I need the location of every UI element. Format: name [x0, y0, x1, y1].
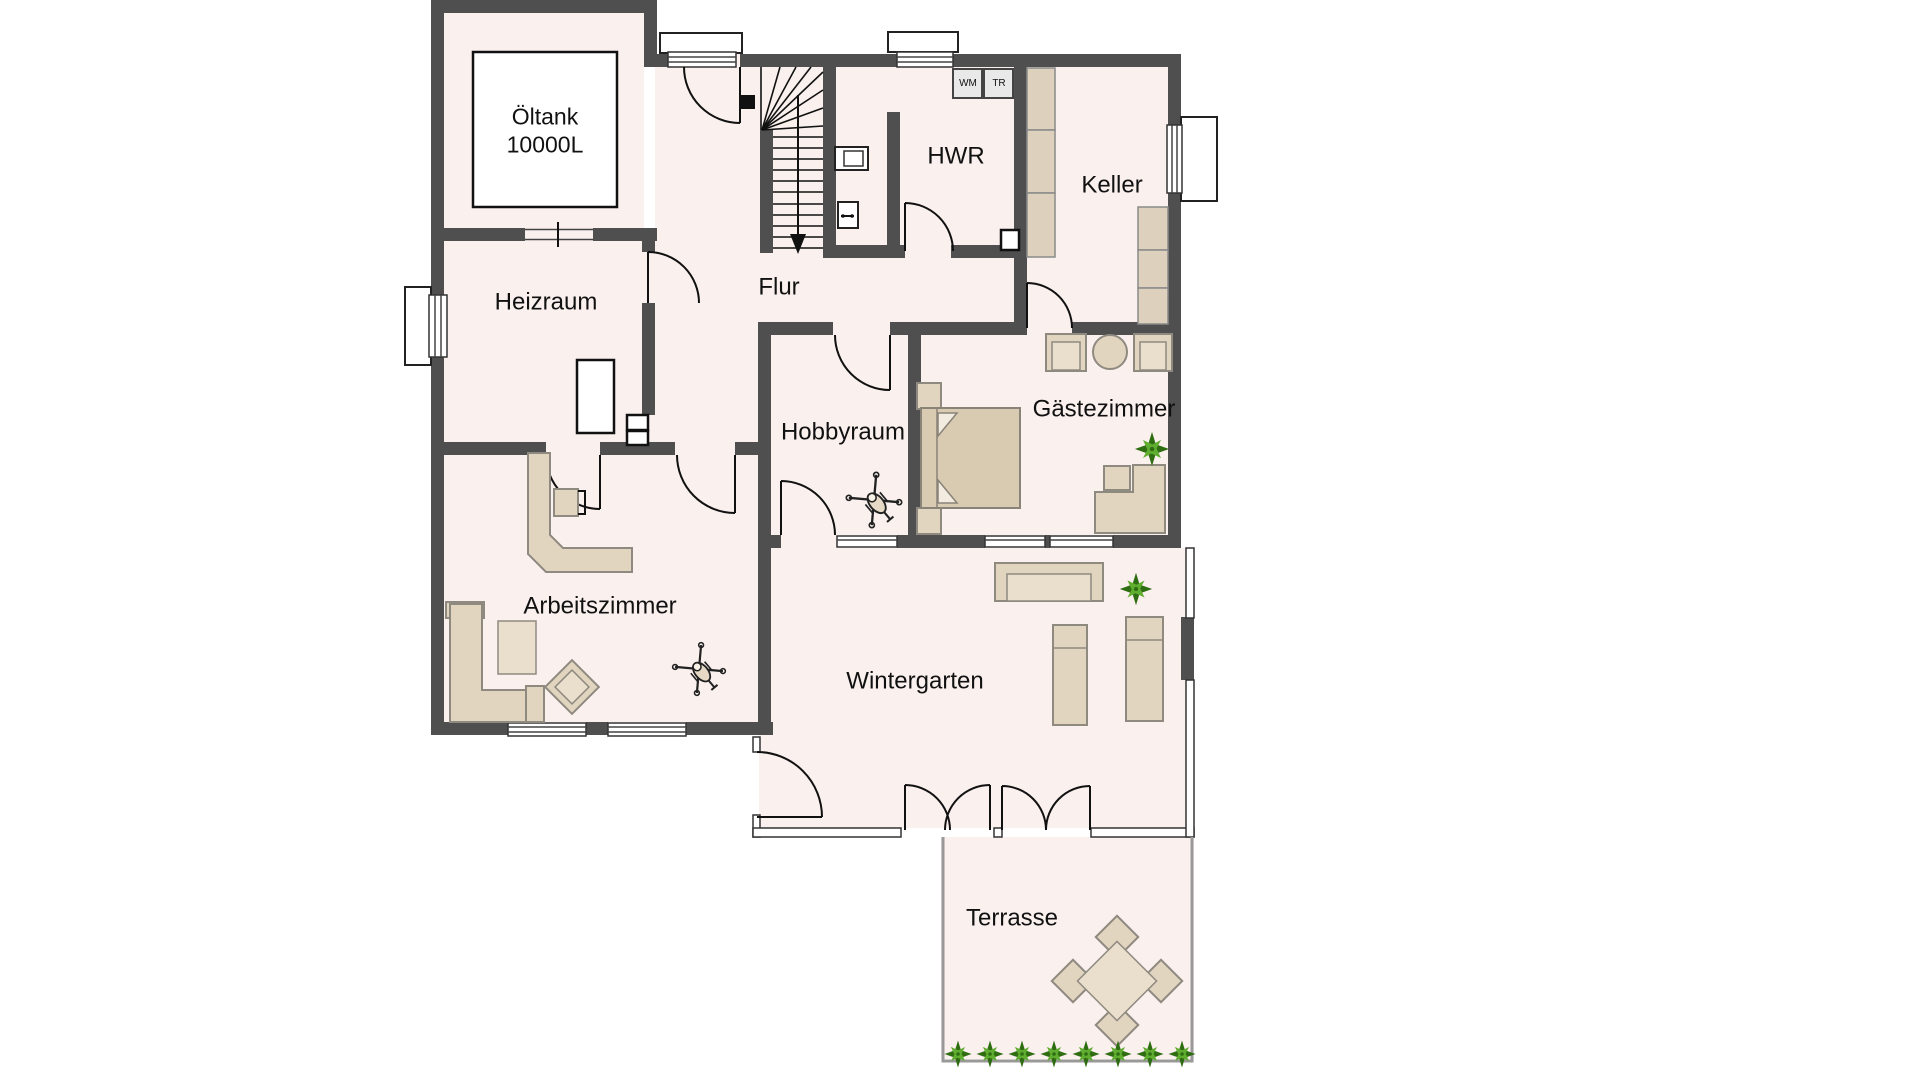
glass-wall [1186, 680, 1194, 837]
wall [686, 722, 773, 735]
lounger [1053, 625, 1087, 725]
glass-wall [1091, 828, 1194, 837]
bench-seat [1007, 574, 1091, 601]
room-label-wintergarten: Wintergarten [846, 668, 983, 697]
room-label-terrasse: Terrasse [966, 905, 1058, 934]
wall [431, 241, 444, 295]
wall [758, 322, 833, 335]
shelf [1138, 250, 1168, 288]
lounger [1126, 617, 1163, 721]
window [897, 52, 953, 67]
wall [593, 228, 657, 241]
shelf [1138, 288, 1168, 324]
wall [890, 322, 1027, 335]
newel-post [741, 95, 755, 109]
entry-steps [668, 52, 736, 67]
armchair-seat [1140, 342, 1166, 370]
glass-wall [994, 828, 1002, 837]
glass-wall [753, 737, 760, 752]
nightstand [917, 383, 941, 409]
washing-machine-label: WM [959, 78, 977, 90]
floor-plan: Öltank 10000L Heizraum Flur HWR Keller H… [0, 0, 1920, 1080]
shelf [1138, 207, 1168, 250]
glass-wall [1186, 548, 1194, 618]
room-label-heizraum: Heizraum [495, 289, 598, 318]
window [837, 536, 897, 547]
wall [758, 322, 771, 735]
bed [921, 408, 1020, 508]
wall [897, 535, 985, 548]
floor-opening [833, 322, 890, 335]
glass-wall [753, 828, 901, 837]
shelf [1027, 68, 1055, 130]
wall [953, 54, 1181, 67]
oeltank-label-line2: 10000L [507, 131, 584, 159]
room-label-flur: Flur [758, 274, 799, 303]
wall [642, 241, 655, 252]
washbasin-icon [835, 147, 868, 170]
wall [431, 0, 444, 241]
room-label-hobbyraum: Hobbyraum [781, 419, 905, 448]
floor-opening [905, 245, 951, 258]
floor-opening [675, 442, 735, 455]
boiler [577, 360, 614, 433]
wall [431, 357, 444, 735]
floor-opening [781, 535, 837, 548]
shelf [1027, 130, 1055, 193]
window [508, 723, 586, 736]
floor-terrasse [941, 837, 1194, 1059]
window [1050, 536, 1113, 547]
room-label-oeltank: Öltank 10000L [507, 103, 584, 158]
wall [823, 245, 905, 258]
wall [1168, 54, 1181, 125]
wall [431, 228, 525, 241]
wall [771, 535, 781, 548]
room-label-keller: Keller [1081, 172, 1142, 201]
window-sill [888, 32, 958, 52]
wall [431, 0, 657, 13]
wall [431, 722, 508, 735]
desk-chair [1104, 466, 1130, 490]
window [985, 536, 1045, 547]
wall [1113, 535, 1181, 548]
sofa-arm [526, 686, 544, 722]
wall [1014, 67, 1027, 335]
shelf [1027, 193, 1055, 257]
wall [760, 130, 773, 253]
floor-heizraum [444, 241, 658, 442]
desk-chair [554, 489, 578, 516]
wall [642, 303, 655, 415]
armchair-seat [1052, 342, 1080, 370]
chimney-box [627, 431, 648, 445]
round-table [1093, 335, 1127, 369]
chimney-box [1001, 230, 1019, 250]
room-label-gaestezimmer: Gästezimmer [1033, 396, 1176, 425]
floor-opening [546, 442, 600, 455]
chimney-box [627, 415, 648, 430]
floor-passage [655, 322, 758, 442]
coffee-table [498, 621, 536, 674]
entry-landing [660, 33, 742, 53]
window [608, 723, 686, 736]
nightstand [917, 508, 941, 534]
wall [887, 112, 900, 245]
room-label-hwr: HWR [927, 143, 984, 172]
wall [1181, 617, 1194, 680]
window-sill [405, 287, 431, 365]
oeltank-label-line1: Öltank [507, 103, 584, 131]
window [429, 295, 447, 357]
wall [735, 442, 758, 455]
wall [586, 722, 608, 735]
window [1167, 125, 1182, 193]
wall-cabinet-icon [838, 202, 858, 228]
room-label-arbeitszimmer: Arbeitszimmer [523, 593, 676, 622]
window-sill [1181, 117, 1217, 201]
wall [740, 54, 897, 67]
dryer-label: TR [992, 78, 1005, 90]
